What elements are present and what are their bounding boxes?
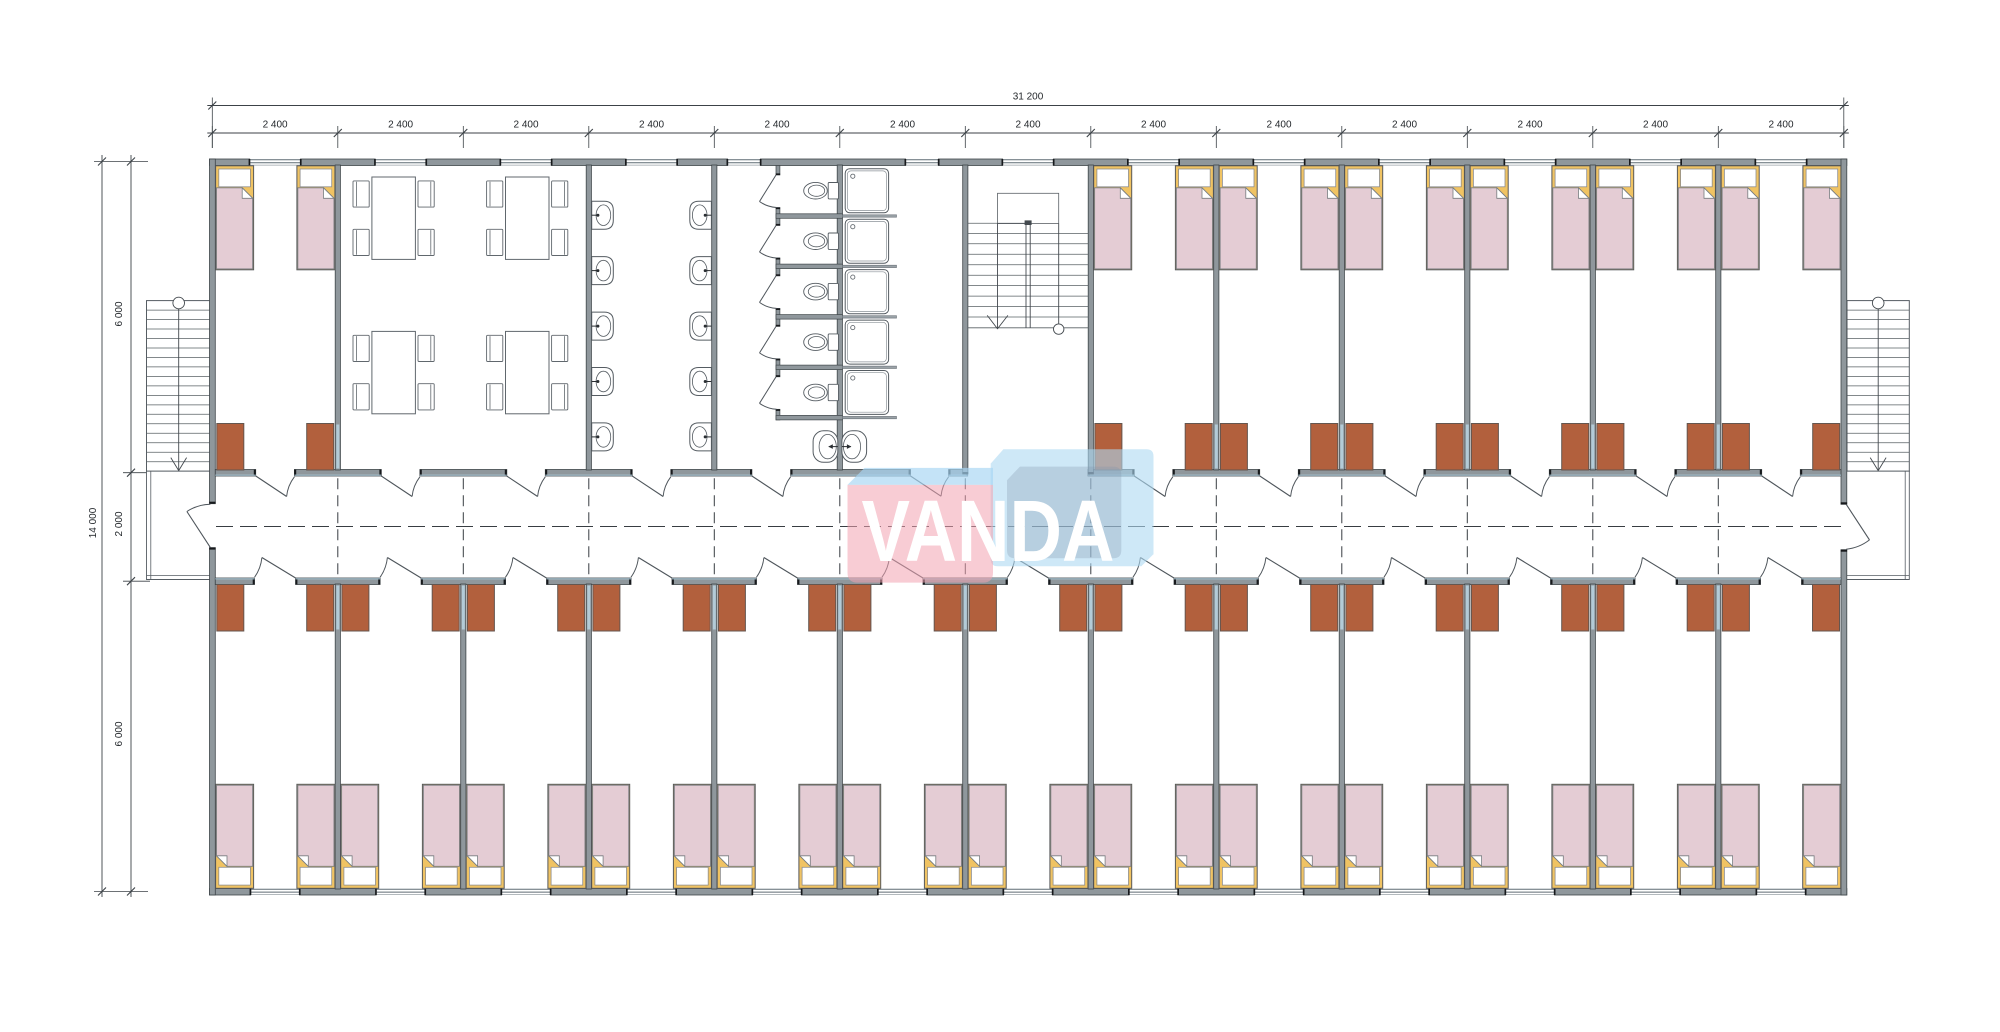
svg-text:2 400: 2 400 (1266, 120, 1291, 131)
svg-text:2 000: 2 000 (114, 511, 125, 536)
svg-text:2 400: 2 400 (1643, 120, 1668, 131)
svg-text:2 400: 2 400 (639, 120, 664, 131)
svg-text:14 000: 14 000 (88, 507, 99, 538)
svg-text:2 400: 2 400 (388, 120, 413, 131)
svg-text:2 400: 2 400 (1015, 120, 1040, 131)
svg-text:2 400: 2 400 (1517, 120, 1542, 131)
svg-text:2 400: 2 400 (764, 120, 789, 131)
svg-text:2 400: 2 400 (1768, 120, 1793, 131)
svg-text:2 400: 2 400 (263, 120, 288, 131)
svg-text:2 400: 2 400 (1392, 120, 1417, 131)
svg-text:2 400: 2 400 (513, 120, 538, 131)
svg-text:31 200: 31 200 (1013, 92, 1044, 103)
svg-text:2 400: 2 400 (1141, 120, 1166, 131)
svg-text:2 400: 2 400 (890, 120, 915, 131)
svg-text:6 000: 6 000 (114, 721, 125, 746)
svg-text:6 000: 6 000 (114, 301, 125, 326)
svg-text:VANDA: VANDA (862, 483, 1115, 580)
